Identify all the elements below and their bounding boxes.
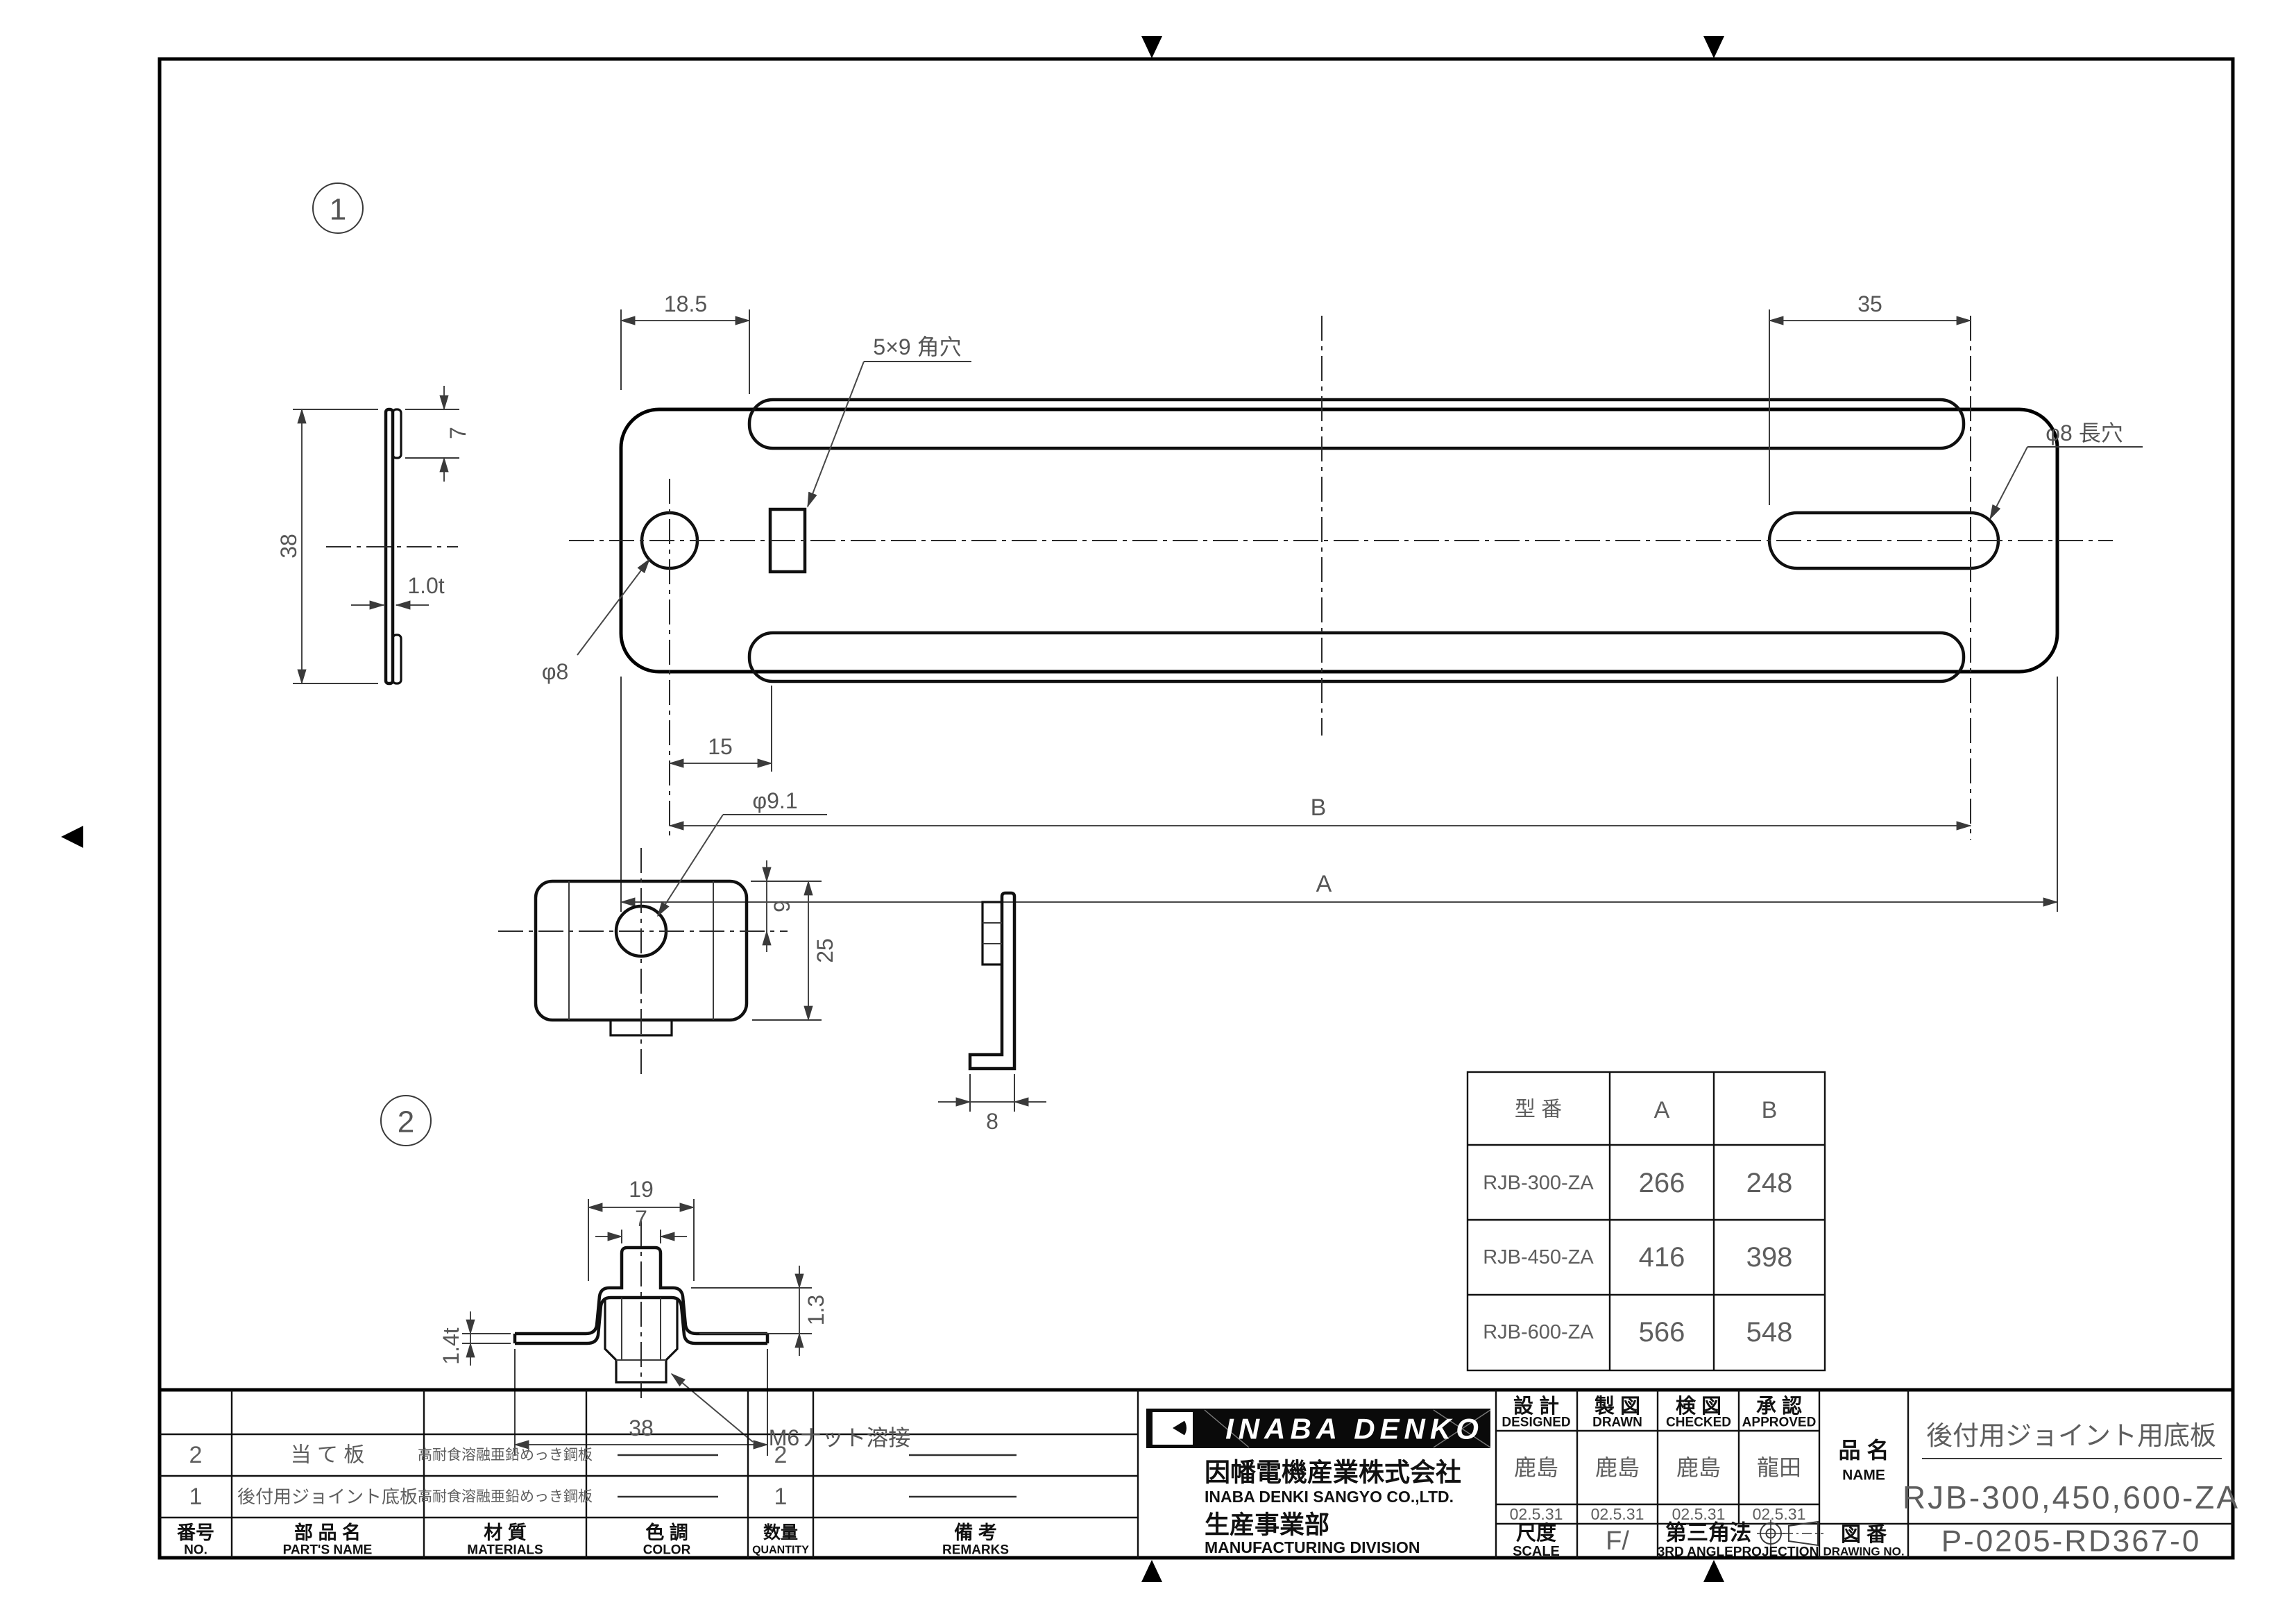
parts-header-material-en: MATERIALS bbox=[467, 1543, 543, 1558]
dim-9: 9 bbox=[769, 900, 794, 912]
company-name-en: INABA DENKI SANGYO CO.,LTD. bbox=[1205, 1488, 1454, 1506]
scale-label-en: SCALE bbox=[1513, 1544, 1560, 1559]
name-label-jp: 品 名 bbox=[1839, 1438, 1889, 1463]
model-row3-a: 566 bbox=[1639, 1317, 1685, 1348]
checked-name: 鹿島 bbox=[1676, 1455, 1721, 1480]
product-code: RJB-300,450,600-ZA bbox=[1903, 1479, 2240, 1515]
dim-B: B bbox=[1311, 794, 1327, 821]
parts-row1-name: 後付用ジョイント底板 bbox=[237, 1486, 418, 1507]
drawing-no-label-en: DRAWING NO. bbox=[1823, 1545, 1904, 1558]
parts-header-name-jp: 部 品 名 bbox=[294, 1522, 361, 1543]
dim-A: A bbox=[1316, 871, 1332, 897]
model-row1-b: 248 bbox=[1746, 1168, 1793, 1198]
drawn-name: 鹿島 bbox=[1595, 1455, 1640, 1480]
part1-slotted-hole bbox=[1769, 513, 1998, 568]
division-en: MANUFACTURING DIVISION bbox=[1205, 1538, 1420, 1556]
drawn-date: 02.5.31 bbox=[1591, 1505, 1644, 1523]
dim-25: 25 bbox=[813, 938, 837, 963]
scale-value: F/ bbox=[1606, 1527, 1629, 1556]
approved-label-en: APPROVED bbox=[1742, 1416, 1817, 1430]
model-col-header: 型 番 bbox=[1515, 1098, 1562, 1121]
model-col-a: A bbox=[1654, 1097, 1670, 1123]
division-jp: 生産事業部 bbox=[1205, 1511, 1329, 1539]
label-m6-nut: M6ナット溶接 bbox=[769, 1425, 910, 1450]
center-mark-left-icon bbox=[61, 826, 83, 848]
designed-label-en: DESIGNED bbox=[1502, 1416, 1570, 1430]
parts-header-no-en: NO. bbox=[184, 1543, 207, 1558]
part1-bottom-rail bbox=[749, 633, 1964, 681]
center-mark-top-icon bbox=[1141, 36, 1162, 58]
parts-header-color-jp: 色 調 bbox=[645, 1522, 688, 1543]
dim-19: 19 bbox=[629, 1177, 654, 1202]
dim-35: 35 bbox=[1857, 291, 1882, 316]
dim-7-front: 7 bbox=[635, 1206, 647, 1231]
model-row2-a: 416 bbox=[1639, 1242, 1685, 1273]
logo-text: INABA DENKO bbox=[1225, 1413, 1483, 1445]
parts-row2-material: 高耐食溶融亜鉛めっき鋼板 bbox=[418, 1447, 593, 1463]
parts-header-color-en: COLOR bbox=[643, 1543, 691, 1558]
checked-label-en: CHECKED bbox=[1666, 1416, 1731, 1430]
parts-row2-no: 2 bbox=[189, 1442, 203, 1468]
balloon-1-label: 1 bbox=[330, 193, 346, 227]
part2-side-outline bbox=[970, 893, 1014, 1069]
model-row1-name: RJB-300-ZA bbox=[1483, 1172, 1594, 1194]
balloon-2-label: 2 bbox=[398, 1105, 414, 1139]
part1-top-rail bbox=[749, 400, 1964, 448]
drawing-canvas: 1 18.5 5×9 角穴 35 φ8 長穴 φ8 15 B A 7 38 1.… bbox=[0, 0, 2296, 1623]
approved-name: 龍田 bbox=[1757, 1455, 1801, 1480]
scale-label-jp: 尺度 bbox=[1516, 1522, 1556, 1545]
product-name: 後付用ジョイント用底板 bbox=[1926, 1422, 2216, 1451]
model-row3-b: 548 bbox=[1746, 1317, 1793, 1348]
dim-38-front: 38 bbox=[629, 1416, 654, 1441]
dim-1-4t: 1.4t bbox=[439, 1327, 464, 1364]
drawn-label-en: DRAWN bbox=[1592, 1416, 1642, 1430]
parts-header-name-en: PART'S NAME bbox=[283, 1543, 373, 1558]
name-label-en: NAME bbox=[1842, 1468, 1885, 1484]
dim-18-5: 18.5 bbox=[664, 291, 707, 316]
part2-side-nut bbox=[983, 902, 1002, 965]
parts-row1-no: 1 bbox=[189, 1484, 203, 1510]
designed-name: 鹿島 bbox=[1514, 1455, 1558, 1480]
dim-15: 15 bbox=[708, 734, 733, 759]
parts-header-remarks-jp: 備 考 bbox=[954, 1522, 997, 1543]
dim-8: 8 bbox=[986, 1109, 998, 1134]
parts-header-remarks-en: REMARKS bbox=[942, 1543, 1009, 1558]
center-mark-bottom2-icon bbox=[1703, 1560, 1724, 1582]
parts-header-qty-en: QUANTITY bbox=[752, 1545, 809, 1556]
parts-row2-qty: 2 bbox=[774, 1442, 788, 1468]
dim-38-side: 38 bbox=[276, 534, 301, 559]
drawing-no-value: P-0205-RD367-0 bbox=[1941, 1524, 2202, 1558]
center-mark-bottom-icon bbox=[1141, 1560, 1162, 1582]
registration-marks bbox=[61, 36, 1724, 1582]
parts-header-qty-jp: 数量 bbox=[763, 1523, 798, 1543]
model-row1-a: 266 bbox=[1639, 1168, 1685, 1198]
label-phi-9-1: φ9.1 bbox=[752, 788, 797, 813]
drawing-no-label-jp: 図 番 bbox=[1841, 1523, 1887, 1546]
designed-label-jp: 設 計 bbox=[1513, 1394, 1559, 1418]
drawing-sheet: 1 18.5 5×9 角穴 35 φ8 長穴 φ8 15 B A 7 38 1.… bbox=[0, 0, 2296, 1623]
label-round-hole: φ8 bbox=[542, 659, 569, 684]
approved-date: 02.5.31 bbox=[1753, 1505, 1806, 1523]
parts-row1-qty: 1 bbox=[774, 1484, 788, 1510]
drawn-label-jp: 製 図 bbox=[1595, 1395, 1640, 1418]
projection-label-jp: 第三角法 bbox=[1665, 1521, 1751, 1545]
model-col-b: B bbox=[1762, 1097, 1778, 1123]
part2-views bbox=[381, 815, 1046, 1456]
model-row2-name: RJB-450-ZA bbox=[1483, 1246, 1594, 1268]
designed-date: 02.5.31 bbox=[1510, 1505, 1563, 1523]
dim-1-0t: 1.0t bbox=[407, 573, 444, 598]
parts-header-material-jp: 材 質 bbox=[484, 1522, 527, 1543]
parts-row2-name: 当 て 板 bbox=[291, 1444, 365, 1467]
center-mark-top2-icon bbox=[1703, 36, 1724, 58]
label-square-hole: 5×9 角穴 bbox=[873, 334, 961, 359]
parts-header-no-jp: 番号 bbox=[177, 1522, 214, 1543]
dim-hem-7: 7 bbox=[445, 427, 470, 439]
dim-1-3: 1.3 bbox=[803, 1295, 828, 1325]
parts-row1-material: 高耐食溶融亜鉛めっき鋼板 bbox=[418, 1489, 593, 1505]
company-name-jp: 因幡電機産業株式会社 bbox=[1205, 1459, 1461, 1487]
approved-label-jp: 承 認 bbox=[1756, 1394, 1802, 1418]
model-row2-b: 398 bbox=[1746, 1242, 1793, 1273]
model-row3-name: RJB-600-ZA bbox=[1483, 1321, 1594, 1343]
projection-label-en: 3RD ANGLEPROJECTION bbox=[1658, 1545, 1819, 1560]
label-slot-hole: φ8 長穴 bbox=[2046, 420, 2123, 445]
checked-label-jp: 検 図 bbox=[1676, 1395, 1721, 1418]
